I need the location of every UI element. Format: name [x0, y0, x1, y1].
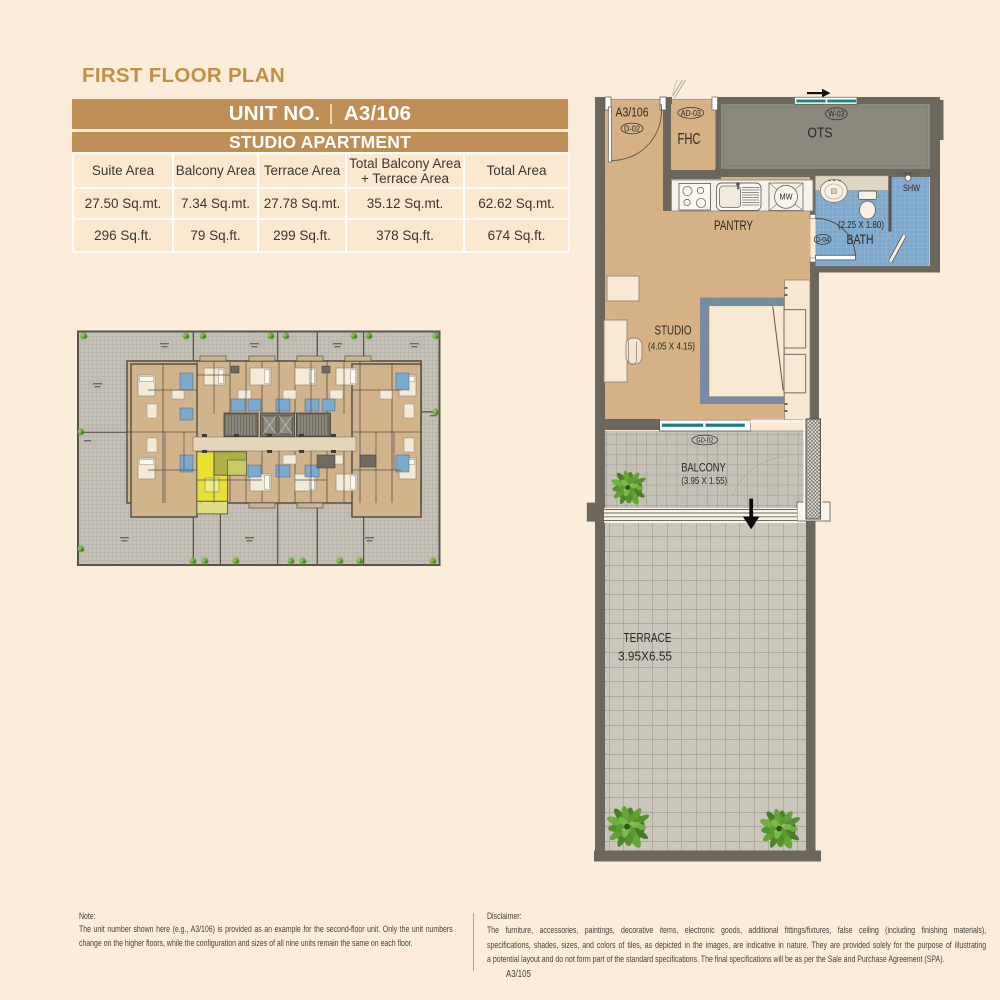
svg-text:AD-03: AD-03 — [681, 108, 701, 118]
svg-text:W-03: W-03 — [828, 110, 844, 119]
svg-text:BATH: BATH — [847, 231, 874, 247]
svg-text:(3.95 X 1.55): (3.95 X 1.55) — [681, 475, 727, 487]
svg-text:OTS: OTS — [808, 125, 833, 142]
svg-text:PANTRY: PANTRY — [714, 217, 753, 233]
svg-text:BALCONY: BALCONY — [681, 460, 726, 474]
svg-text:3.95X6.55: 3.95X6.55 — [618, 650, 672, 664]
svg-text:(2.25 X 1.80): (2.25 X 1.80) — [838, 219, 884, 231]
svg-text:A3/106: A3/106 — [616, 106, 649, 120]
svg-text:D-04: D-04 — [816, 235, 830, 244]
svg-text:TERRACE: TERRACE — [624, 631, 672, 645]
svg-text:GD-02: GD-02 — [696, 436, 713, 445]
svg-text:D-02: D-02 — [624, 123, 640, 133]
svg-text:(4.05 X 4.15): (4.05 X 4.15) — [648, 340, 695, 352]
svg-text:STUDIO: STUDIO — [655, 322, 692, 337]
svg-text:FHC: FHC — [678, 131, 701, 148]
svg-text:MW: MW — [780, 193, 793, 202]
svg-text:SHW: SHW — [903, 183, 920, 193]
